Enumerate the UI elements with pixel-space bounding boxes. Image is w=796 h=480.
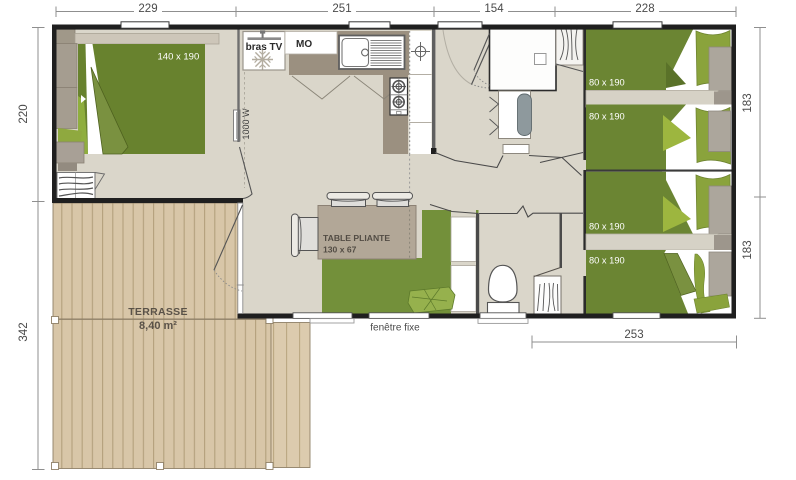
svg-text:229: 229 bbox=[138, 3, 157, 15]
svg-text:220: 220 bbox=[18, 104, 30, 123]
svg-text:TERRASSE: TERRASSE bbox=[128, 306, 188, 318]
svg-text:MO: MO bbox=[296, 39, 312, 50]
svg-text:fenêtre fixe: fenêtre fixe bbox=[370, 323, 420, 334]
svg-text:TABLE PLIANTE: TABLE PLIANTE bbox=[323, 233, 390, 243]
svg-text:183: 183 bbox=[742, 93, 754, 112]
svg-text:80 x 190: 80 x 190 bbox=[589, 256, 625, 266]
svg-text:130 x 67: 130 x 67 bbox=[323, 245, 357, 255]
svg-text:80 x 190: 80 x 190 bbox=[589, 112, 625, 122]
svg-text:342: 342 bbox=[18, 322, 30, 341]
svg-text:251: 251 bbox=[332, 3, 351, 15]
svg-text:154: 154 bbox=[484, 3, 504, 15]
svg-text:bras TV: bras TV bbox=[246, 42, 283, 53]
svg-text:8,40 m²: 8,40 m² bbox=[139, 320, 177, 332]
svg-text:80 x 190: 80 x 190 bbox=[589, 222, 625, 232]
svg-text:228: 228 bbox=[635, 3, 654, 15]
svg-text:183: 183 bbox=[742, 240, 754, 259]
svg-text:140 x 190: 140 x 190 bbox=[158, 52, 200, 63]
svg-text:253: 253 bbox=[624, 329, 643, 341]
svg-text:1000 W: 1000 W bbox=[241, 108, 251, 140]
svg-text:80 x 190: 80 x 190 bbox=[589, 78, 625, 88]
